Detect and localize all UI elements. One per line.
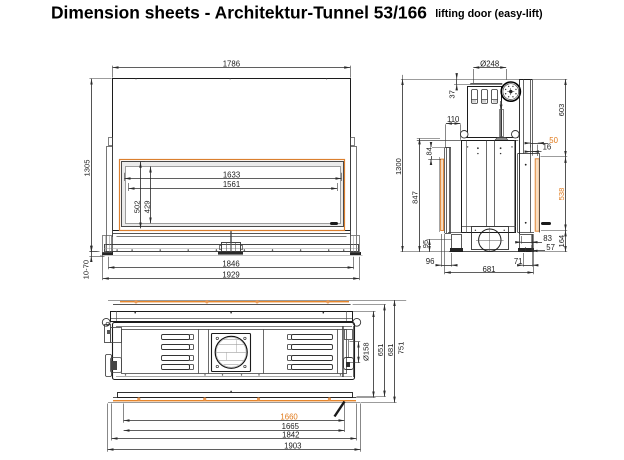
svg-text:164: 164 xyxy=(557,235,566,248)
svg-text:1842: 1842 xyxy=(282,431,299,440)
svg-text:71: 71 xyxy=(514,257,523,266)
svg-text:1903: 1903 xyxy=(284,442,301,451)
svg-text:110: 110 xyxy=(447,115,460,124)
svg-text:1305: 1305 xyxy=(82,160,91,177)
svg-text:1633: 1633 xyxy=(223,170,240,179)
svg-text:Ø248: Ø248 xyxy=(480,59,499,68)
svg-text:847: 847 xyxy=(411,191,420,204)
svg-text:84: 84 xyxy=(425,147,434,155)
svg-text:1846: 1846 xyxy=(222,260,239,269)
svg-text:1660: 1660 xyxy=(280,413,298,422)
svg-text:lifting door (easy-lift): lifting door (easy-lift) xyxy=(435,8,543,20)
svg-text:538: 538 xyxy=(557,188,566,201)
svg-text:57: 57 xyxy=(546,243,555,252)
svg-text:751: 751 xyxy=(396,342,405,355)
svg-text:1929: 1929 xyxy=(222,270,239,279)
svg-text:502: 502 xyxy=(132,201,141,214)
svg-text:681: 681 xyxy=(386,344,395,357)
svg-text:Ø158: Ø158 xyxy=(361,342,370,361)
svg-text:603: 603 xyxy=(557,104,566,117)
svg-text:37: 37 xyxy=(448,90,457,98)
svg-text:83: 83 xyxy=(543,234,552,243)
svg-text:95: 95 xyxy=(421,240,430,248)
svg-text:16: 16 xyxy=(543,142,552,151)
svg-text:1561: 1561 xyxy=(223,180,240,189)
svg-text:1786: 1786 xyxy=(223,59,240,68)
svg-text:Dimension sheets - Architektur: Dimension sheets - Architektur-Tunnel 53… xyxy=(51,2,427,22)
svg-text:1300: 1300 xyxy=(394,158,403,175)
svg-text:429: 429 xyxy=(142,201,151,214)
svg-text:651: 651 xyxy=(376,344,385,357)
svg-text:681: 681 xyxy=(482,265,495,274)
svg-text:10-70: 10-70 xyxy=(81,260,90,279)
svg-text:96: 96 xyxy=(426,257,435,266)
svg-text:1665: 1665 xyxy=(282,422,300,431)
